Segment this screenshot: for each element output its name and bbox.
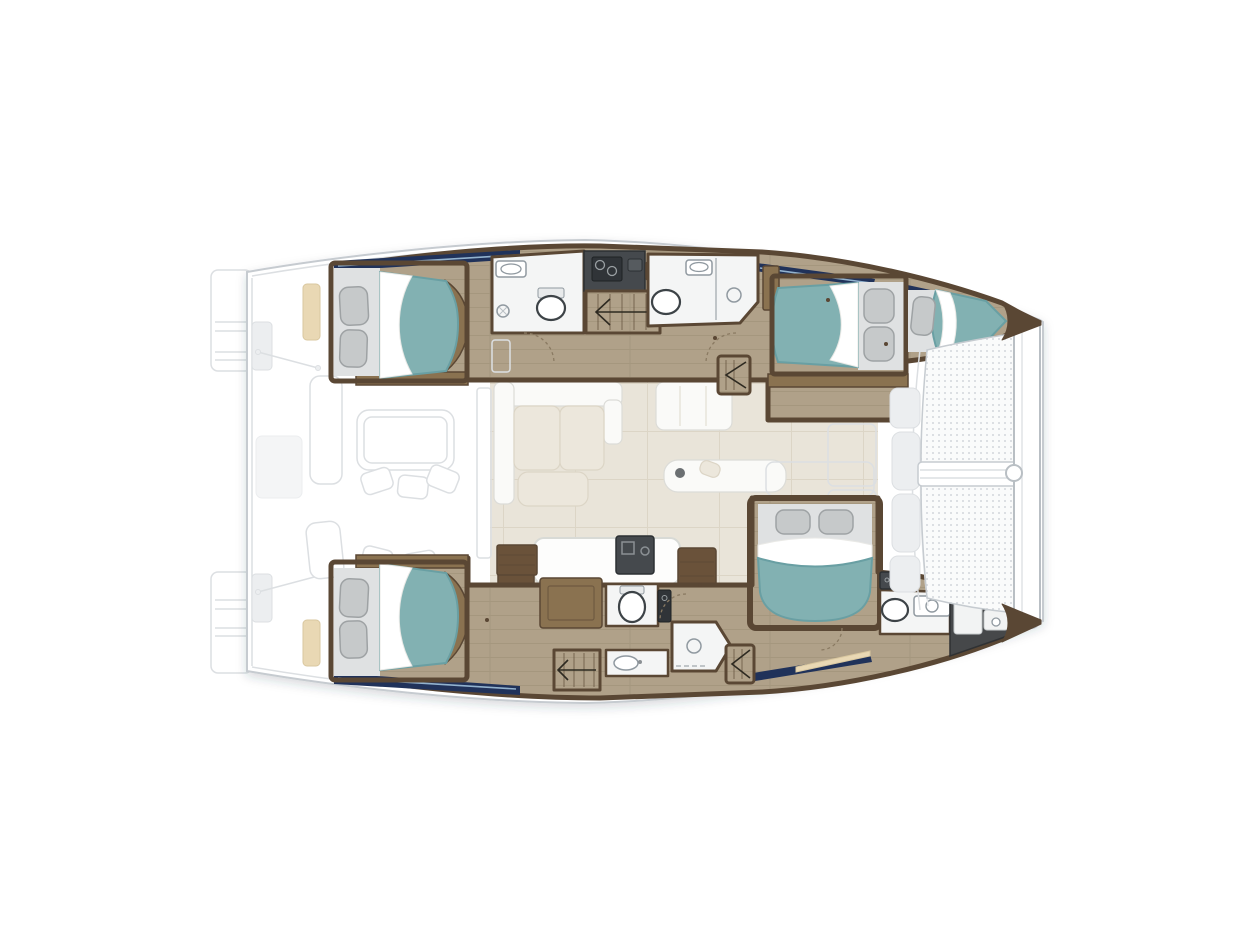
sofa-back-left [494, 382, 514, 504]
swim-platform-top [211, 270, 252, 371]
davit-block-icon [256, 590, 261, 595]
sofa-cushion [514, 406, 560, 470]
bed-mattress [758, 558, 872, 621]
bed-pillow [339, 330, 367, 368]
cockpit-chair [397, 474, 429, 499]
bowsprit-fitting-icon [1006, 465, 1022, 481]
floor-plan-svg [0, 0, 1260, 945]
catamaran-floor-plan [0, 0, 1260, 945]
cockpit-cushion-top [303, 284, 320, 340]
transom-step-bottom [252, 574, 272, 622]
trampoline-center-beam [918, 462, 1018, 486]
trampoline-panel-bottom [921, 484, 1016, 613]
aft-starboard-cabin [331, 555, 468, 680]
hull-shelf-unit [497, 545, 537, 575]
faucet-icon [638, 660, 642, 664]
port-entry-steps [718, 356, 750, 394]
starboard-entry-steps [726, 645, 754, 683]
swim-platform-bottom [211, 572, 252, 673]
porthole-icon [992, 618, 1000, 626]
starboard-aft-stairs [554, 650, 600, 690]
aft-port-cabin [331, 263, 468, 385]
toilet [882, 599, 908, 621]
port-aft-head [492, 251, 584, 333]
foredeck-seat [890, 388, 920, 428]
davit-block-icon [256, 350, 261, 355]
berth-pillow [910, 296, 936, 336]
davit-block-icon [316, 366, 321, 371]
sofa-chaise-cushion [518, 472, 588, 506]
bed-pillow [864, 289, 894, 323]
toilet [619, 592, 645, 622]
bed-pillow [339, 621, 367, 659]
bed-pillow [339, 578, 369, 617]
door-latch-dot [485, 618, 489, 622]
swim-platforms [211, 270, 252, 673]
sofa-armrest [604, 400, 622, 444]
door-latch-dot [884, 342, 888, 346]
cockpit-cushion-bottom [303, 620, 320, 666]
door-latch-dot [826, 298, 830, 302]
bed-pillow [339, 286, 369, 325]
stove [592, 257, 622, 281]
trampoline-panel-top [921, 333, 1016, 464]
cockpit-locker [256, 436, 302, 498]
sink [614, 656, 638, 670]
cockpit-table [357, 410, 454, 470]
trampoline [918, 318, 1040, 628]
bed-pillow [819, 510, 853, 534]
port-forward-head [648, 254, 758, 326]
toilet [652, 290, 680, 314]
galley-island [534, 538, 680, 584]
bed-pillow [776, 510, 810, 534]
cockpit-bench-left [310, 376, 342, 484]
foredeck-seat [890, 556, 920, 592]
transom-step-top [252, 322, 272, 370]
bowl-icon [675, 468, 685, 478]
counter-sink [628, 259, 642, 271]
toilet [537, 296, 565, 320]
foredeck-seat [892, 494, 920, 552]
sofa-cushion [560, 406, 604, 470]
forward-starboard-cabin [750, 498, 880, 628]
foredeck-seat [892, 432, 920, 490]
bed-pillow [864, 327, 894, 361]
door-latch-dot [713, 336, 717, 340]
door-latch-dot [698, 583, 702, 587]
